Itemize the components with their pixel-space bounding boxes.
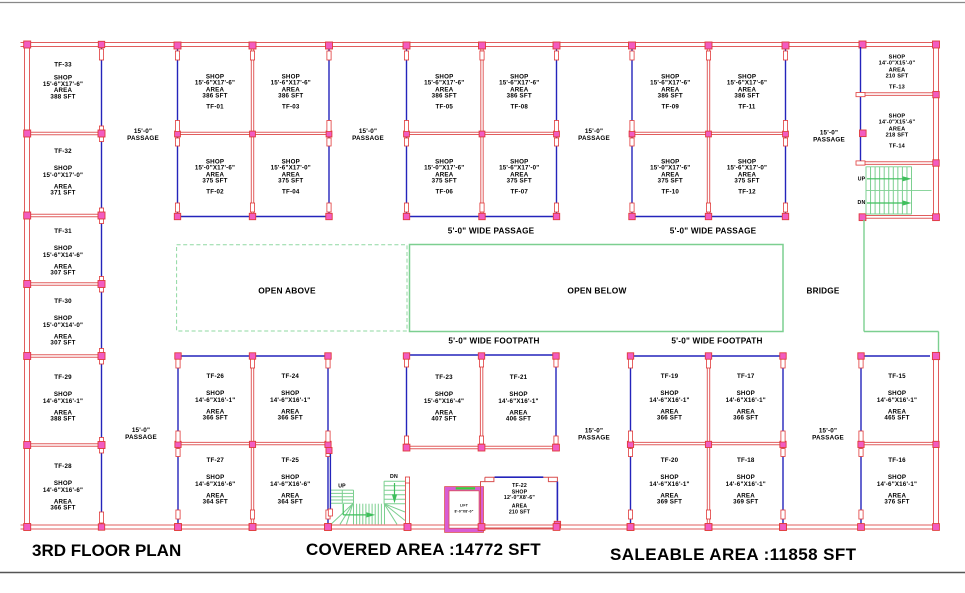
svg-text:SHOP: SHOP: [281, 390, 299, 397]
svg-text:15'-6"X17'-0": 15'-6"X17'-0": [271, 165, 311, 172]
svg-text:TF-18: TF-18: [737, 457, 755, 464]
svg-text:TF-25: TF-25: [281, 457, 299, 464]
svg-text:TF-31: TF-31: [54, 228, 72, 235]
svg-text:PASSAGE: PASSAGE: [578, 135, 610, 142]
svg-text:14'-6"X16'-1": 14'-6"X16'-1": [43, 398, 83, 405]
svg-text:TF-23: TF-23: [435, 374, 453, 381]
svg-text:307 SFT: 307 SFT: [50, 270, 75, 277]
svg-text:SHOP: SHOP: [737, 474, 755, 481]
svg-text:TF-27: TF-27: [206, 457, 224, 464]
svg-text:SHOP: SHOP: [660, 474, 678, 481]
svg-text:388 SFT: 388 SFT: [50, 94, 75, 101]
svg-text:SHOP: SHOP: [54, 391, 72, 398]
svg-text:DN: DN: [858, 200, 866, 206]
svg-text:15'-0": 15'-0": [585, 428, 603, 435]
svg-text:TF-15: TF-15: [888, 373, 906, 380]
svg-text:12'-0"X8'-6": 12'-0"X8'-6": [504, 495, 535, 501]
svg-text:14'-0"X15'-0": 14'-0"X15'-0": [879, 61, 916, 67]
svg-text:15'-0"X17'-6": 15'-0"X17'-6": [195, 165, 235, 172]
svg-text:14'-6"X16'-1": 14'-6"X16'-1": [877, 397, 917, 404]
svg-text:210 SFT: 210 SFT: [509, 509, 531, 515]
svg-text:375 SFT: 375 SFT: [507, 178, 532, 185]
svg-text:375 SFT: 375 SFT: [278, 178, 303, 185]
svg-text:5'-0" WIDE FOOTPATH: 5'-0" WIDE FOOTPATH: [448, 337, 539, 346]
svg-text:386 SFT: 386 SFT: [507, 93, 532, 100]
svg-text:14'-6"X16'-6": 14'-6"X16'-6": [43, 487, 83, 494]
svg-text:406 SFT: 406 SFT: [506, 416, 531, 423]
svg-text:TF-22: TF-22: [512, 483, 527, 489]
svg-text:15'-0": 15'-0": [585, 128, 603, 135]
svg-text:TF-04: TF-04: [282, 189, 300, 196]
svg-text:SHOP: SHOP: [509, 391, 527, 398]
svg-text:SHOP: SHOP: [888, 474, 906, 481]
svg-text:15'-0": 15'-0": [819, 428, 837, 435]
svg-text:TF-09: TF-09: [661, 104, 679, 111]
svg-text:364 SFT: 364 SFT: [203, 499, 228, 506]
svg-text:386 SFT: 386 SFT: [658, 93, 683, 100]
svg-text:TF-07: TF-07: [510, 189, 528, 196]
svg-text:386 SFT: 386 SFT: [278, 93, 303, 100]
svg-text:210 SFT: 210 SFT: [886, 74, 909, 80]
svg-text:15'-6"X17'-6": 15'-6"X17'-6": [499, 80, 539, 87]
svg-text:15'-6"X16'-4": 15'-6"X16'-4": [424, 398, 464, 405]
svg-text:14'-6"X16'-1": 14'-6"X16'-1": [498, 398, 538, 405]
svg-text:14'-6"X16'-1": 14'-6"X16'-1": [649, 397, 689, 404]
svg-text:366 SFT: 366 SFT: [278, 415, 303, 422]
svg-text:TF-33: TF-33: [54, 62, 72, 69]
svg-text:TF-06: TF-06: [435, 189, 453, 196]
svg-text:SHOP: SHOP: [54, 245, 72, 252]
svg-text:LIFT: LIFT: [460, 504, 469, 508]
svg-text:386 SFT: 386 SFT: [432, 93, 457, 100]
svg-text:307 SFT: 307 SFT: [50, 340, 75, 347]
svg-text:UP: UP: [858, 177, 866, 183]
svg-text:14'-6"X16'-1": 14'-6"X16'-1": [649, 481, 689, 488]
svg-text:375 SFT: 375 SFT: [658, 178, 683, 185]
svg-text:14'-6"X16'-1": 14'-6"X16'-1": [726, 397, 766, 404]
svg-text:SALEABLE AREA :11858 SFT: SALEABLE AREA :11858 SFT: [610, 545, 857, 564]
svg-text:407 SFT: 407 SFT: [431, 416, 456, 423]
svg-text:14'-6"X16'-1": 14'-6"X16'-1": [195, 397, 235, 404]
svg-text:15'-6"X17'-6": 15'-6"X17'-6": [727, 80, 767, 87]
svg-text:TF-10: TF-10: [661, 189, 679, 196]
svg-text:SHOP: SHOP: [54, 480, 72, 487]
svg-text:OPEN ABOVE: OPEN ABOVE: [258, 286, 316, 296]
svg-text:364 SFT: 364 SFT: [278, 499, 303, 506]
svg-text:386 SFT: 386 SFT: [202, 93, 227, 100]
svg-text:15'-6"X17'-6": 15'-6"X17'-6": [424, 80, 464, 87]
svg-text:375 SFT: 375 SFT: [432, 178, 457, 185]
svg-text:TF-12: TF-12: [738, 189, 756, 196]
svg-text:PASSAGE: PASSAGE: [813, 137, 845, 144]
svg-text:375 SFT: 375 SFT: [202, 178, 227, 185]
svg-text:15'-0"X17'-0": 15'-0"X17'-0": [43, 172, 83, 179]
svg-text:TF-14: TF-14: [889, 144, 906, 150]
svg-text:TF-13: TF-13: [889, 85, 905, 91]
svg-text:COVERED AREA :14772 SFT: COVERED AREA :14772 SFT: [306, 540, 541, 559]
svg-text:5'-0" WIDE PASSAGE: 5'-0" WIDE PASSAGE: [670, 227, 757, 236]
svg-text:14'-6"X16'-1": 14'-6"X16'-1": [726, 481, 766, 488]
svg-text:TF-32: TF-32: [54, 148, 72, 155]
svg-text:SHOP: SHOP: [435, 391, 453, 398]
svg-text:15'-0": 15'-0": [820, 130, 838, 137]
svg-text:TF-03: TF-03: [282, 104, 300, 111]
svg-text:PASSAGE: PASSAGE: [125, 434, 157, 441]
svg-text:14'-6"X16'-6": 14'-6"X16'-6": [195, 481, 235, 488]
svg-text:SHOP: SHOP: [206, 390, 224, 397]
svg-text:14'-0"X15'-6": 14'-0"X15'-6": [879, 120, 916, 126]
svg-text:218 SFT: 218 SFT: [886, 133, 909, 139]
svg-text:PASSAGE: PASSAGE: [578, 435, 610, 442]
svg-text:15'-6"X17'-6": 15'-6"X17'-6": [650, 80, 690, 87]
svg-text:465 SFT: 465 SFT: [884, 415, 909, 422]
svg-text:3RD FLOOR PLAN: 3RD FLOOR PLAN: [32, 541, 181, 560]
svg-text:14'-6"X16'-1": 14'-6"X16'-1": [270, 397, 310, 404]
svg-text:8'-0"X8'-0": 8'-0"X8'-0": [454, 510, 473, 514]
svg-text:TF-24: TF-24: [281, 373, 299, 380]
svg-text:PASSAGE: PASSAGE: [352, 135, 384, 142]
svg-text:TF-08: TF-08: [510, 104, 528, 111]
svg-text:TF-11: TF-11: [738, 104, 756, 111]
svg-text:TF-26: TF-26: [206, 373, 224, 380]
svg-text:15'-6"X14'-6": 15'-6"X14'-6": [43, 252, 83, 259]
svg-text:TF-19: TF-19: [661, 373, 679, 380]
svg-text:366 SFT: 366 SFT: [733, 415, 758, 422]
svg-text:14'-6"X16'-6": 14'-6"X16'-6": [270, 481, 310, 488]
svg-text:15'-6"X17'-0": 15'-6"X17'-0": [727, 165, 767, 172]
svg-text:366 SFT: 366 SFT: [657, 415, 682, 422]
svg-text:15'-6"X17'-6": 15'-6"X17'-6": [195, 80, 235, 87]
svg-text:15'-0"X17'-6": 15'-0"X17'-6": [424, 165, 464, 172]
svg-text:15'-6"X17'-6": 15'-6"X17'-6": [271, 80, 311, 87]
svg-text:SHOP: SHOP: [281, 474, 299, 481]
svg-text:366 SFT: 366 SFT: [203, 415, 228, 422]
svg-text:15'-0": 15'-0": [134, 128, 152, 135]
svg-text:TF-20: TF-20: [661, 457, 679, 464]
svg-text:388 SFT: 388 SFT: [50, 416, 75, 423]
svg-text:14'-6"X16'-1": 14'-6"X16'-1": [877, 481, 917, 488]
svg-text:15'-0"X14'-0": 15'-0"X14'-0": [43, 322, 83, 329]
svg-text:TF-29: TF-29: [54, 374, 72, 381]
svg-text:15'-6"X17'-0": 15'-6"X17'-0": [499, 165, 539, 172]
svg-text:PASSAGE: PASSAGE: [127, 135, 159, 142]
svg-text:15'-0": 15'-0": [359, 128, 377, 135]
svg-text:TF-17: TF-17: [737, 373, 755, 380]
svg-text:SHOP: SHOP: [737, 390, 755, 397]
svg-text:UP: UP: [338, 484, 346, 490]
svg-text:PASSAGE: PASSAGE: [812, 435, 844, 442]
svg-text:TF-28: TF-28: [54, 463, 72, 470]
svg-text:SHOP: SHOP: [54, 315, 72, 322]
svg-text:5'-0" WIDE PASSAGE: 5'-0" WIDE PASSAGE: [448, 227, 535, 236]
svg-text:BRIDGE: BRIDGE: [806, 287, 839, 296]
svg-text:375 SFT: 375 SFT: [734, 178, 759, 185]
svg-text:15'-0": 15'-0": [132, 427, 150, 434]
svg-text:SHOP: SHOP: [660, 390, 678, 397]
svg-text:TF-01: TF-01: [206, 104, 224, 111]
svg-text:TF-30: TF-30: [54, 298, 72, 305]
svg-text:TF-02: TF-02: [206, 189, 224, 196]
svg-text:371 SFT: 371 SFT: [50, 190, 75, 197]
svg-text:DN: DN: [390, 474, 398, 480]
svg-text:369 SFT: 369 SFT: [733, 499, 758, 506]
svg-text:366 SFT: 366 SFT: [50, 505, 75, 512]
svg-text:376 SFT: 376 SFT: [884, 499, 909, 506]
svg-text:369 SFT: 369 SFT: [657, 499, 682, 506]
svg-text:TF-21: TF-21: [510, 374, 528, 381]
svg-text:TF-16: TF-16: [888, 457, 906, 464]
svg-text:5'-0" WIDE FOOTPATH: 5'-0" WIDE FOOTPATH: [671, 337, 762, 346]
svg-text:15'-0"X17'-6": 15'-0"X17'-6": [650, 165, 690, 172]
svg-text:386 SFT: 386 SFT: [734, 93, 759, 100]
svg-text:SHOP: SHOP: [206, 474, 224, 481]
svg-text:SHOP: SHOP: [888, 390, 906, 397]
svg-text:SHOP: SHOP: [54, 165, 72, 172]
svg-text:TF-05: TF-05: [435, 104, 453, 111]
svg-text:OPEN BELOW: OPEN BELOW: [567, 286, 626, 296]
